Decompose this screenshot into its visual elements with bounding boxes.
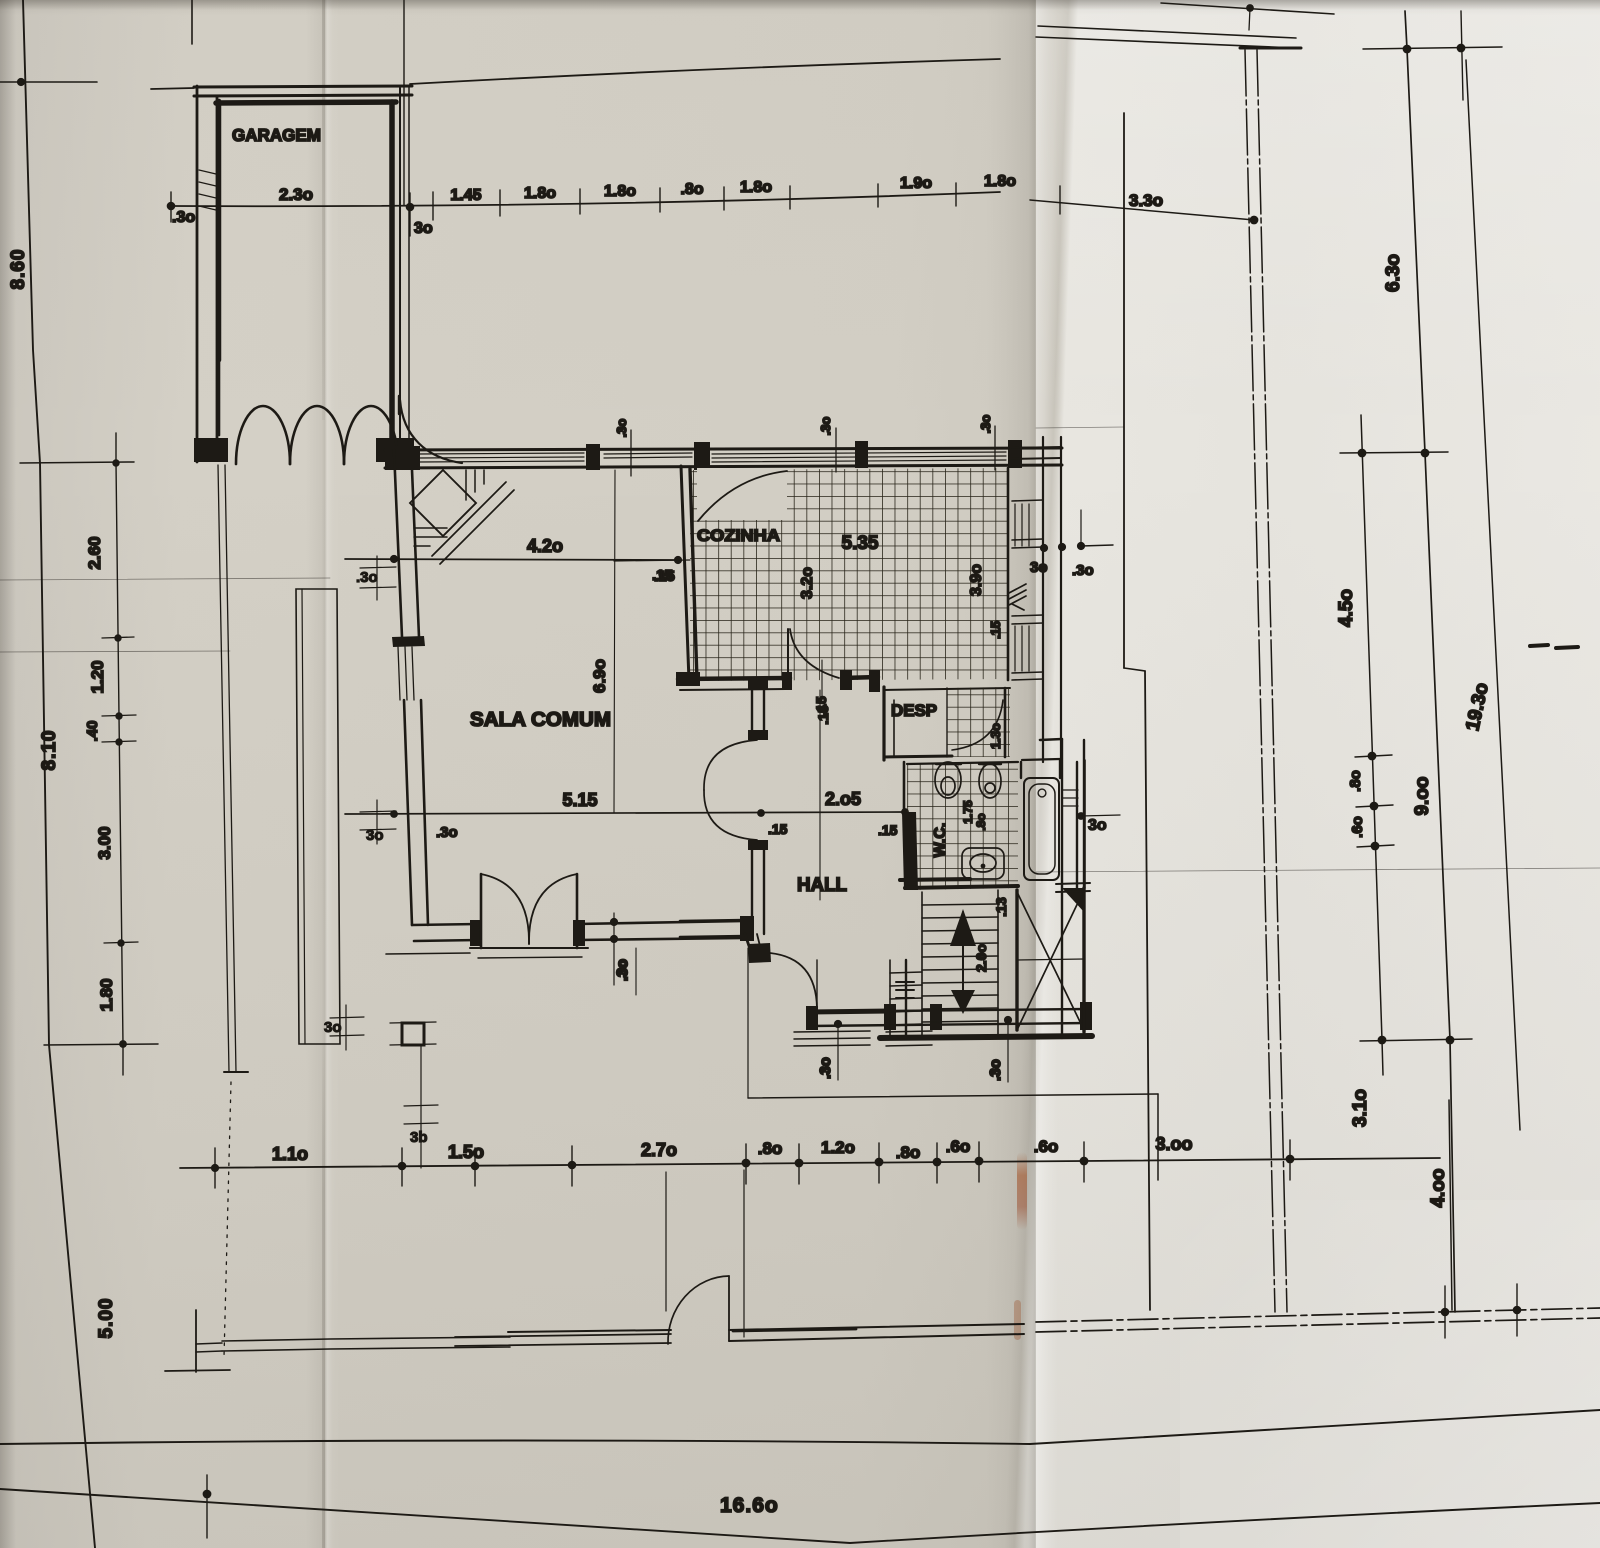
svg-text:.8o: .8o (680, 181, 703, 198)
svg-text:.3o: .3o (818, 417, 833, 436)
svg-text:6.3o: 6.3o (1383, 254, 1404, 292)
svg-text:3.9o: 3.9o (968, 564, 985, 596)
svg-text:.15: .15 (652, 567, 673, 584)
svg-text:5.00: 5.00 (96, 1298, 117, 1339)
svg-text:3o: 3o (324, 1019, 342, 1036)
svg-text:.3o: .3o (987, 1059, 1004, 1081)
svg-text:GARAGEM: GARAGEM (232, 125, 321, 145)
svg-text:.40: .40 (84, 721, 101, 742)
svg-text:.3o: .3o (614, 419, 629, 438)
svg-text:1.20: 1.20 (88, 660, 107, 693)
svg-text:1.75: 1.75 (961, 800, 975, 824)
svg-text:3o: 3o (366, 827, 384, 844)
svg-text:2.0o: 2.0o (973, 944, 989, 972)
svg-text:.3o: .3o (1072, 562, 1094, 579)
svg-text:.3o: .3o (978, 415, 993, 434)
svg-text:3o: 3o (1088, 817, 1107, 834)
svg-text:3.3o: 3.3o (1129, 191, 1163, 210)
svg-text:19.3o: 19.3o (1462, 681, 1493, 733)
svg-text:.3o: .3o (172, 209, 195, 226)
svg-text:4.oo: 4.oo (1428, 1168, 1449, 1207)
svg-text:5.35: 5.35 (842, 533, 879, 554)
svg-text:.3o: .3o (614, 959, 631, 981)
svg-text:6.9o: 6.9o (590, 659, 609, 693)
svg-text:16.6o: 16.6o (720, 1494, 779, 1517)
svg-text:1.3o: 1.3o (988, 723, 1003, 749)
svg-text:1.5o: 1.5o (448, 1142, 484, 1162)
svg-text:.15: .15 (878, 822, 898, 838)
svg-text:.15: .15 (813, 696, 829, 716)
svg-text:4.5o: 4.5o (1336, 589, 1357, 627)
svg-text:3b: 3b (410, 1129, 428, 1146)
svg-text:1.45: 1.45 (450, 187, 481, 204)
svg-text:.6o: .6o (1349, 816, 1366, 838)
svg-text:.6o: .6o (1034, 1137, 1059, 1156)
svg-text:3o: 3o (414, 220, 433, 237)
svg-text:1.8o: 1.8o (604, 183, 636, 200)
svg-text:2.o5: 2.o5 (825, 789, 861, 809)
svg-text:8.60: 8.60 (8, 249, 29, 290)
svg-text:1.8o: 1.8o (740, 179, 772, 196)
svg-text:.8o: .8o (758, 1139, 783, 1158)
svg-text:2.7o: 2.7o (641, 1140, 677, 1160)
svg-text:3.oo: 3.oo (1155, 1134, 1192, 1154)
svg-text:.8o: .8o (1347, 770, 1364, 792)
svg-text:1.80: 1.80 (97, 978, 116, 1011)
svg-text:DESP: DESP (891, 701, 937, 720)
svg-text:1.1o: 1.1o (272, 1144, 308, 1164)
svg-text:1.2o: 1.2o (821, 1138, 855, 1157)
svg-text:2.60: 2.60 (85, 536, 104, 569)
svg-text:.3o: .3o (356, 569, 378, 586)
svg-text:2.3o: 2.3o (279, 185, 313, 204)
svg-text:.15: .15 (768, 821, 788, 837)
svg-text:1.8o: 1.8o (984, 173, 1016, 190)
svg-text:9.oo: 9.oo (1412, 776, 1433, 815)
svg-text:COZINHA: COZINHA (697, 526, 780, 545)
svg-text:.13: .13 (993, 897, 1009, 917)
svg-text:1.9o: 1.9o (900, 175, 932, 192)
svg-text:8.10: 8.10 (39, 730, 60, 771)
svg-text:.6o: .6o (946, 1137, 971, 1156)
svg-text:1.8o: 1.8o (524, 185, 556, 202)
svg-text:.8o: .8o (974, 813, 988, 830)
svg-text:SALA COMUM: SALA COMUM (470, 709, 611, 731)
svg-text:3.2o: 3.2o (799, 567, 816, 599)
svg-text:W.C.: W.C. (932, 823, 949, 858)
svg-text:3o: 3o (1030, 559, 1048, 576)
svg-text:.15: .15 (988, 621, 1003, 639)
svg-text:3.1o: 3.1o (1350, 1089, 1371, 1127)
svg-text:4.2o: 4.2o (527, 536, 563, 556)
svg-text:.3o: .3o (436, 824, 458, 841)
svg-text:HALL: HALL (797, 875, 847, 896)
svg-text:.8o: .8o (896, 1143, 921, 1162)
svg-text:3.00: 3.00 (95, 826, 114, 859)
svg-text:.3o: .3o (817, 1057, 834, 1079)
svg-text:5.15: 5.15 (562, 790, 597, 810)
